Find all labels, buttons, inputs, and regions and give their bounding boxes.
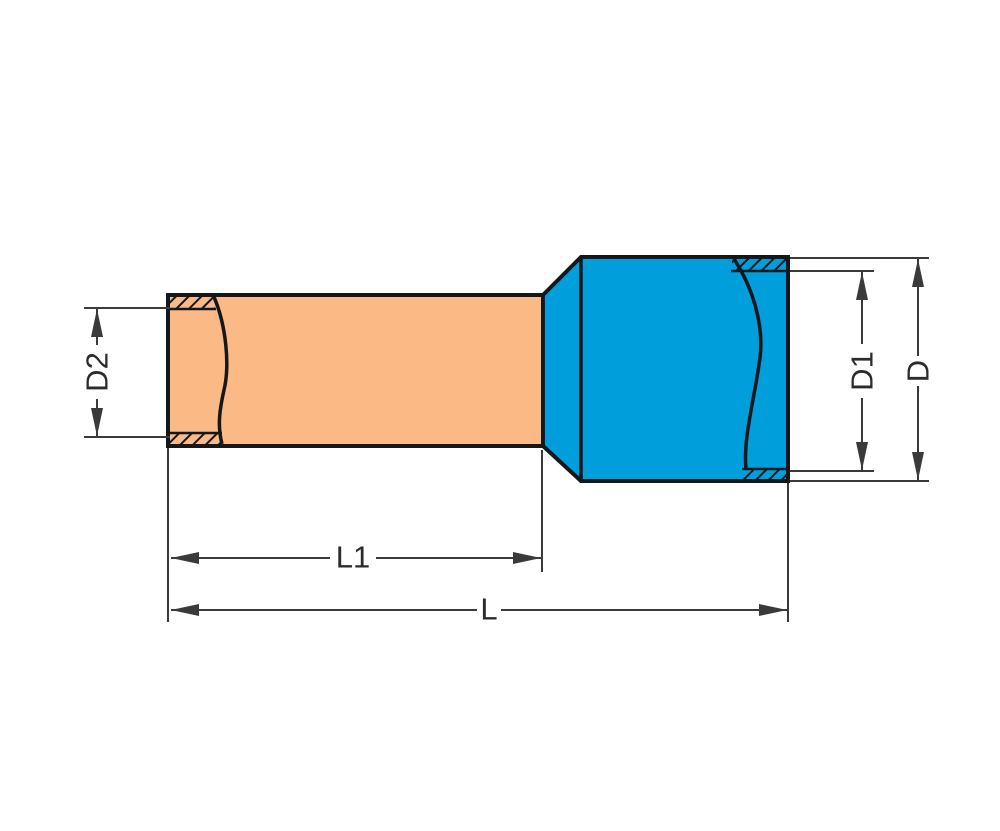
sleeve-hatch-bottom [170, 433, 221, 445]
d1-label: D1 [845, 351, 880, 391]
d1-arrow-up [856, 272, 868, 300]
d1-arrow-down [856, 442, 868, 470]
ferrule-technical-drawing: D2 D1 D L1 L [0, 0, 1000, 831]
l-arrow-right [759, 604, 787, 616]
d-arrow-up [912, 259, 924, 287]
d-arrow-down [912, 452, 924, 480]
l1-label: L1 [336, 540, 370, 575]
d-label: D [901, 360, 936, 382]
copper-sleeve-body [168, 295, 543, 446]
l1-arrow-left [171, 552, 199, 564]
l-label: L [480, 592, 497, 627]
collar-hatch-bottom [743, 469, 787, 480]
d2-arrow-down [91, 408, 103, 436]
l1-arrow-right [513, 552, 541, 564]
d2-arrow-up [91, 309, 103, 337]
l-arrow-left [171, 604, 199, 616]
sleeve-hatch-top [170, 297, 215, 309]
d2-label: D2 [80, 352, 115, 392]
drawing-svg: D2 D1 D L1 L [0, 0, 1000, 831]
